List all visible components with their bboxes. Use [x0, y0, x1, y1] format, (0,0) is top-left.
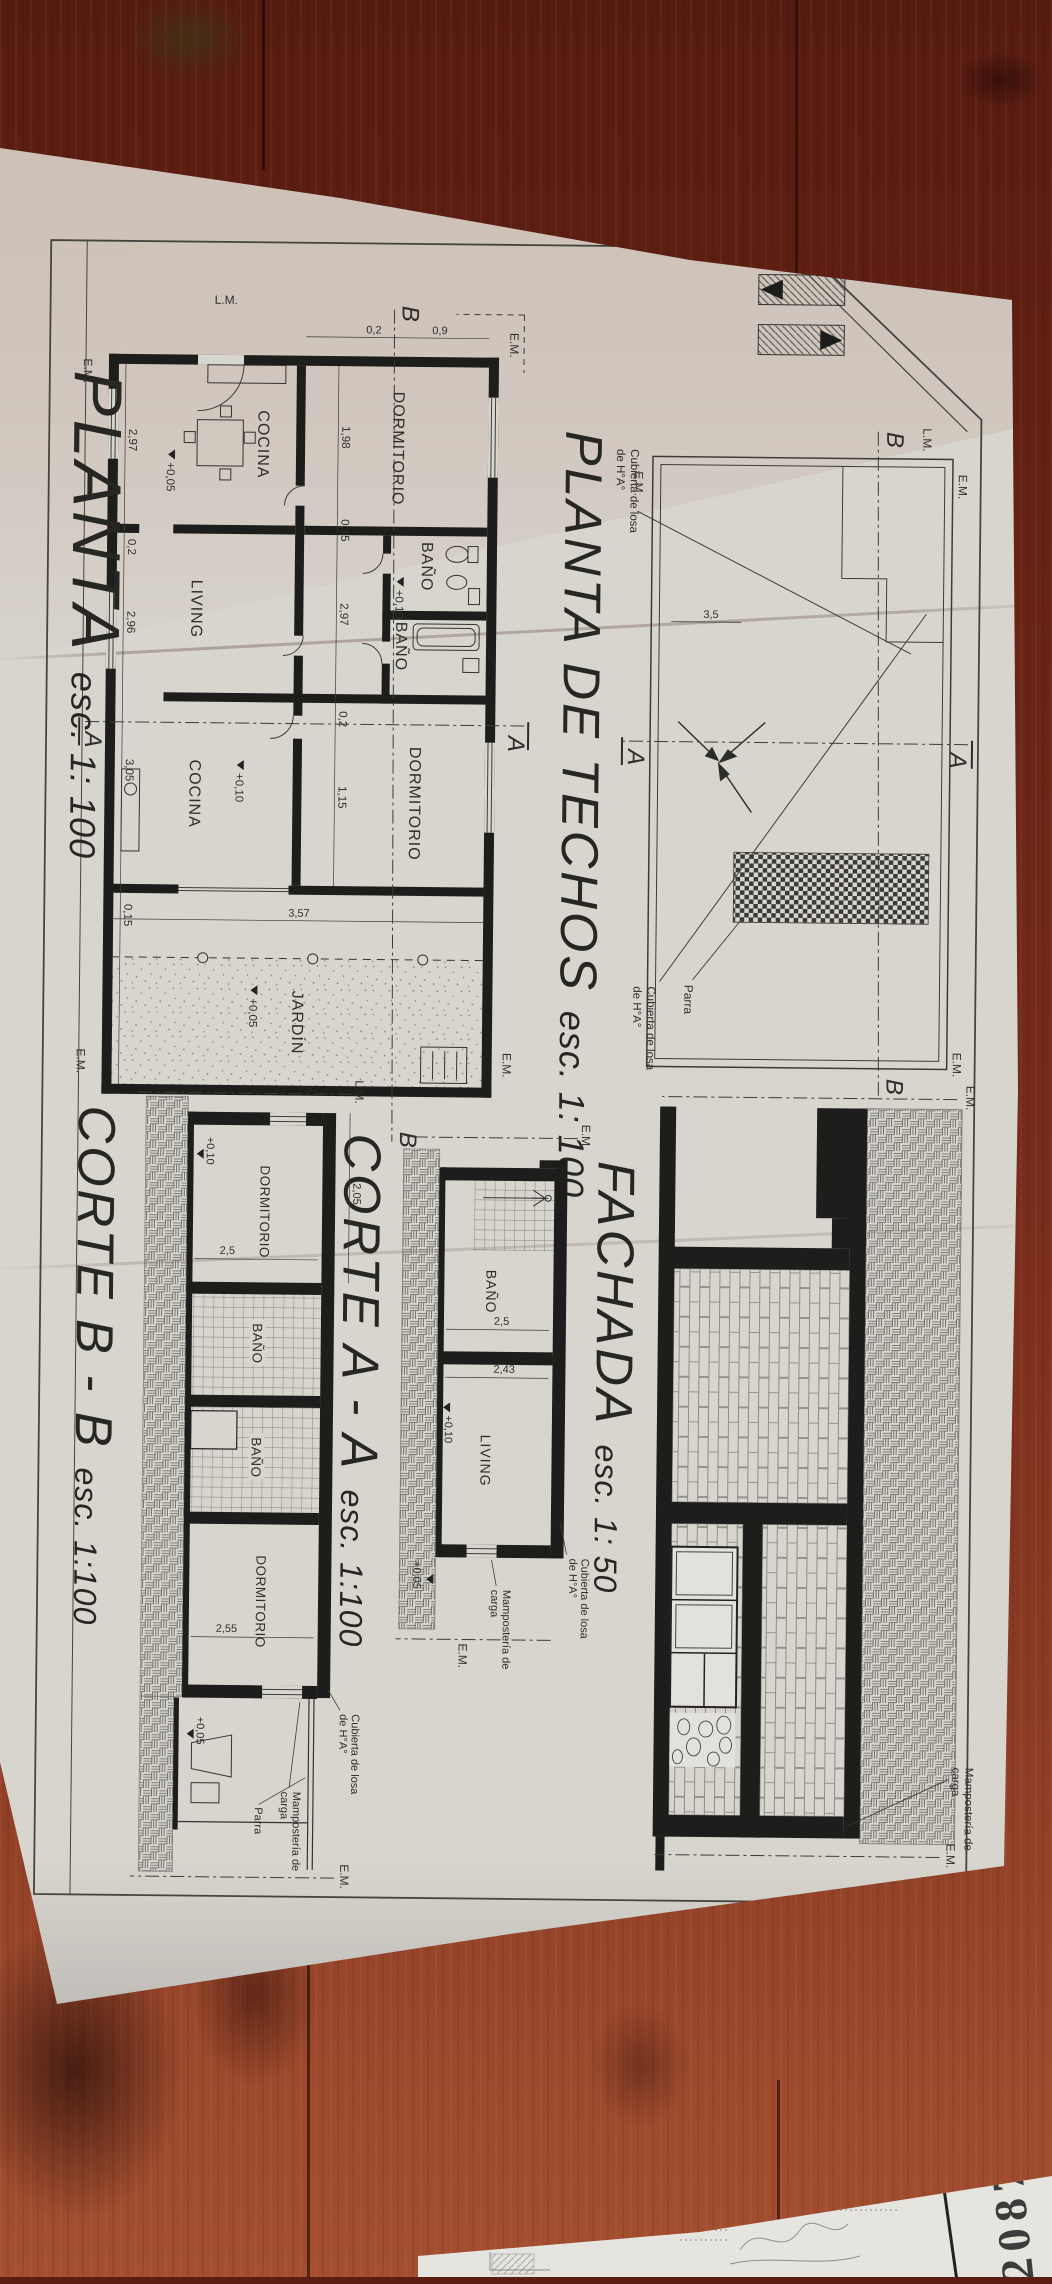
em-marker: E.M. — [943, 1844, 957, 1869]
svg-text:0,15: 0,15 — [338, 519, 350, 542]
svg-text:Cubierta de losa: Cubierta de losa — [644, 986, 657, 1070]
em-marker: E.M. — [500, 1053, 514, 1078]
title-scale: esc. 1:100 — [66, 1467, 105, 1625]
room-label-living: LIVING — [477, 1435, 494, 1487]
em-marker: E.M. — [337, 1864, 351, 1889]
room-label-bano: BAÑO — [250, 1323, 265, 1363]
section-b-marker: B — [881, 432, 908, 448]
room-label-bano: BAÑO — [248, 1437, 263, 1477]
section-b-marker: B — [396, 306, 423, 322]
title-text: PLANTA — [56, 370, 137, 654]
corte-b-drawing: DORMITORIO BAÑO BAÑO DORMITORIO 2,05 2,5… — [118, 1076, 367, 1908]
room-label-cocina: COCINA — [254, 410, 272, 478]
room-label-dormitorio: DORMITORIO — [405, 747, 423, 861]
room-label-living: LIVING — [187, 580, 205, 639]
stone-patch — [669, 1713, 736, 1768]
svg-text:Cubierta de losa: Cubierta de losa — [348, 1714, 361, 1795]
height-dim: 2,5 — [494, 1316, 509, 1328]
svg-text:de H°A°: de H°A° — [614, 449, 626, 490]
plank-gap — [795, 0, 798, 310]
svg-text:de H°A°: de H°A° — [336, 1714, 348, 1753]
facade-window — [670, 1547, 738, 1708]
room-label-cocina: COCINA — [185, 760, 203, 828]
mamposteria-label: Mampostería de carga — [277, 1792, 302, 1872]
section-a-marker: A — [622, 747, 649, 765]
svg-text:+0,05: +0,05 — [410, 1561, 422, 1589]
slope-arrows-icon — [677, 722, 765, 813]
em-marker: E.M. — [455, 1643, 469, 1668]
title-text: CORTE B - B — [63, 1105, 127, 1450]
height-dim: 2,43 — [493, 1364, 515, 1376]
section-a-marker: A — [502, 734, 529, 752]
svg-text:2,97: 2,97 — [337, 603, 349, 626]
title-text: PLANTA DE TECHOS — [547, 430, 613, 993]
svg-text:Cubierta de losa: Cubierta de losa — [627, 449, 640, 533]
floor-plan-title: PLANTA esc. 1: 100 — [54, 370, 137, 859]
corte-a-drawing: BAÑO LIVING 2,5 2,43 +0,10 +0,05 E.M. E.… — [385, 1119, 596, 1701]
parra-trellis-hatch — [733, 852, 929, 924]
roof-dim: 3,5 — [703, 609, 718, 621]
floor-plan-dim-left: 0,2 — [366, 324, 381, 336]
svg-text:Mampostería de: Mampostería de — [499, 1590, 512, 1670]
em-marker: E.M. — [956, 475, 970, 500]
door-arcs — [194, 365, 385, 740]
svg-text:Mampostería de: Mampostería de — [961, 1768, 974, 1851]
room-label-bano: BAÑO — [392, 622, 413, 672]
em-marker: E.M. — [963, 1086, 977, 1111]
height-dim: 2,5 — [220, 1245, 235, 1257]
roof-plan-title: PLANTA DE TECHOS esc. 1: 100 — [545, 430, 613, 1198]
svg-text:1,15: 1,15 — [335, 786, 347, 809]
svg-text:de H°A°: de H°A° — [566, 1559, 578, 1598]
svg-text:Mampostería de: Mampostería de — [289, 1792, 302, 1872]
lm-marker: L.M. — [215, 293, 238, 307]
room-label-bano: BAÑO — [483, 1270, 499, 1314]
svg-text:carga: carga — [488, 1590, 500, 1619]
jardin-dim: 3,57 — [288, 908, 310, 920]
entry-arrows-icon — [732, 262, 853, 373]
title-scale: esc. 1: 100 — [61, 672, 105, 860]
room-label-dormitorio: DORMITORIO — [253, 1555, 269, 1648]
mamposteria-label: Mampostería de carga — [487, 1590, 512, 1670]
em-marker: E.M. — [579, 1125, 593, 1150]
em-marker: E.M. — [507, 333, 521, 358]
level-marks: +0,10 +0,10 +0,05 +0,05 — [158, 449, 406, 1029]
svg-text:+0,10: +0,10 — [232, 773, 244, 802]
parra-label: Parra — [681, 985, 695, 1015]
svg-text:+0,05: +0,05 — [246, 998, 258, 1027]
lm-marker: L.M. — [920, 428, 934, 451]
floor-plan-dim-left: 0,9 — [432, 325, 447, 337]
svg-text:+0,10: +0,10 — [392, 590, 404, 619]
room-label-jardin: JARDÍN — [288, 991, 308, 1055]
svg-text:0,15: 0,15 — [121, 904, 133, 927]
svg-text:+0,05: +0,05 — [194, 1717, 206, 1745]
svg-text:carga: carga — [278, 1792, 290, 1821]
room-label-dormitorio: DORMITORIO — [389, 392, 407, 506]
svg-text:Cubierta de losa: Cubierta de losa — [578, 1559, 591, 1640]
svg-text:+0,10: +0,10 — [442, 1415, 454, 1443]
cubierta-label: Cubierta de losa de H°A° — [336, 1714, 361, 1795]
svg-text:1,98: 1,98 — [339, 426, 351, 449]
roof-plan-drawing: A A B B E.M. E.M. E.M. L.M. Parra Cubier… — [606, 421, 983, 1125]
parra-label: Parra — [252, 1807, 264, 1835]
section-a-marker: A — [944, 750, 971, 768]
plank-gap — [262, 0, 265, 170]
facade-drawing: E.M. E.M. Mampostería de carga — [629, 1076, 982, 1890]
svg-text:+0,05: +0,05 — [164, 462, 176, 491]
svg-text:+0,10: +0,10 — [204, 1137, 216, 1165]
corte-b-title: CORTE B - B esc. 1:100 — [61, 1105, 126, 1625]
height-dim: 2,55 — [216, 1623, 238, 1635]
em-marker: E.M. — [74, 1048, 88, 1073]
lm-marker: L.M. — [352, 1080, 366, 1103]
room-label-bano: BAÑO — [418, 542, 439, 592]
cubierta-label: Cubierta de losa de H°A° — [566, 1559, 591, 1640]
room-label-dormitorio: DORMITORIO — [257, 1165, 273, 1258]
window-dim: 2,05 — [350, 1183, 362, 1205]
svg-text:carga: carga — [949, 1768, 961, 1797]
svg-text:0,2: 0,2 — [336, 711, 348, 727]
svg-text:de H°A°: de H°A° — [630, 986, 642, 1027]
drawing-sheet: A A B B E.M. E.M. E.M. L.M. Parra Cubier… — [26, 170, 994, 1940]
em-marker: E.M. — [950, 1053, 964, 1078]
